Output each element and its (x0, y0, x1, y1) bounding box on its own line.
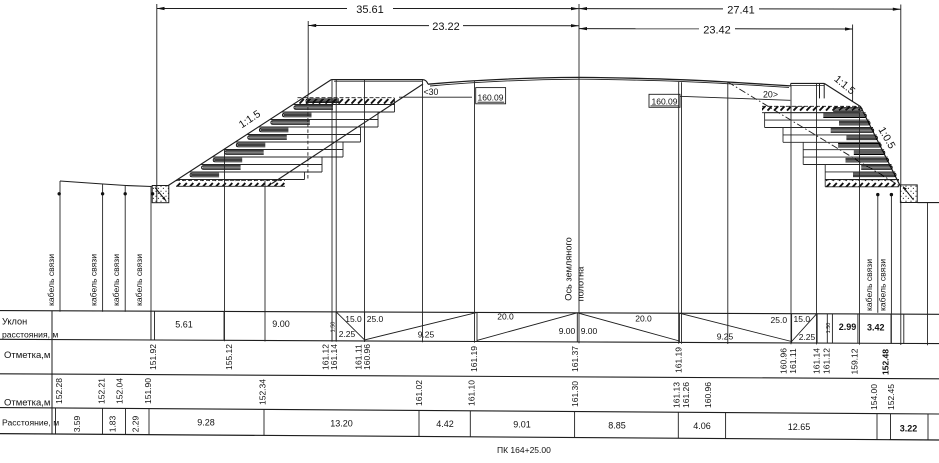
svg-text:4.42: 4.42 (436, 419, 454, 429)
svg-text:9.01: 9.01 (513, 420, 531, 430)
svg-text:160.96: 160.96 (362, 344, 372, 370)
svg-text:152.28: 152.28 (54, 378, 64, 404)
svg-text:25.0: 25.0 (367, 314, 384, 324)
svg-text:8.85: 8.85 (608, 421, 626, 431)
svg-text:161.30: 161.30 (570, 381, 580, 407)
svg-text:<30: <30 (424, 87, 439, 97)
svg-text:9.00: 9.00 (272, 319, 290, 329)
svg-text:кабель связи: кабель связи (134, 254, 144, 306)
svg-text:13.20: 13.20 (330, 419, 353, 429)
svg-text:3.22: 3.22 (900, 424, 918, 434)
svg-text:12.65: 12.65 (788, 422, 811, 432)
svg-text:27.41: 27.41 (727, 5, 755, 17)
svg-text:1.50: 1.50 (826, 323, 832, 334)
svg-text:1.83: 1.83 (108, 415, 118, 432)
svg-text:161.02: 161.02 (414, 380, 424, 406)
svg-text:152.34: 152.34 (258, 379, 268, 405)
svg-text:160.09: 160.09 (652, 96, 678, 106)
svg-text:кабель связи: кабель связи (111, 254, 121, 306)
svg-text:9.00: 9.00 (559, 326, 576, 336)
svg-text:159.12: 159.12 (850, 348, 860, 374)
svg-text:152.21: 152.21 (97, 378, 107, 404)
svg-text:161.10: 161.10 (467, 380, 477, 406)
svg-text:152.04: 152.04 (115, 378, 125, 404)
svg-text:2.25: 2.25 (339, 329, 356, 339)
svg-text:20.0: 20.0 (635, 314, 652, 324)
svg-text:1.50: 1.50 (330, 322, 336, 333)
svg-text:2.29: 2.29 (131, 415, 141, 432)
svg-text:5.61: 5.61 (175, 320, 193, 330)
svg-text:25.0: 25.0 (771, 315, 788, 325)
svg-text:161.37: 161.37 (570, 346, 580, 372)
svg-text:9.00: 9.00 (581, 326, 598, 336)
svg-text:2.25: 2.25 (799, 332, 816, 342)
svg-text:кабель связи: кабель связи (89, 254, 99, 306)
svg-text:кабель связи: кабель связи (46, 254, 56, 306)
svg-text:23.42: 23.42 (703, 25, 731, 37)
svg-text:23.22: 23.22 (432, 21, 460, 33)
svg-text:Отметка,м: Отметка,м (4, 350, 50, 361)
svg-text:4.06: 4.06 (693, 421, 711, 431)
svg-text:20.0: 20.0 (497, 312, 514, 322)
svg-text:161.14: 161.14 (329, 344, 339, 370)
svg-text:152.45: 152.45 (886, 384, 896, 410)
svg-text:15.0: 15.0 (794, 314, 811, 324)
svg-text:161.11: 161.11 (788, 348, 798, 374)
svg-text:160.96: 160.96 (703, 382, 713, 408)
svg-text:9.28: 9.28 (197, 418, 215, 428)
svg-text:1:1.5: 1:1.5 (832, 73, 858, 97)
svg-text:15.0: 15.0 (345, 314, 362, 324)
svg-text:2.99: 2.99 (839, 322, 857, 332)
svg-text:151.90: 151.90 (143, 378, 153, 404)
svg-text:161.13: 161.13 (671, 382, 681, 408)
svg-text:расстояния, м: расстояния, м (2, 330, 58, 340)
svg-text:151.92: 151.92 (148, 344, 158, 370)
svg-text:161.12: 161.12 (821, 348, 831, 374)
svg-text:Отметка,м: Отметка,м (4, 398, 50, 409)
svg-text:20>: 20> (763, 90, 778, 100)
svg-text:160.96: 160.96 (779, 348, 789, 374)
svg-text:160.09: 160.09 (478, 93, 504, 103)
svg-text:35.61: 35.61 (356, 4, 384, 16)
svg-text:полотна: полотна (576, 266, 586, 302)
svg-text:161.19: 161.19 (469, 346, 479, 372)
svg-text:9.25: 9.25 (418, 330, 435, 340)
svg-text:161.26: 161.26 (681, 382, 691, 408)
svg-text:кабель связи: кабель связи (864, 259, 874, 311)
svg-text:3.59: 3.59 (72, 415, 82, 432)
svg-text:161.19: 161.19 (673, 347, 683, 373)
svg-text:154.00: 154.00 (869, 384, 879, 410)
svg-text:155.12: 155.12 (224, 344, 234, 370)
svg-text:Ось земляного: Ось земляного (564, 237, 574, 300)
svg-text:161.14: 161.14 (812, 348, 822, 374)
svg-text:3.42: 3.42 (867, 323, 885, 333)
svg-text:Расстояние, м: Расстояние, м (2, 418, 59, 428)
svg-text:кабель связи: кабель связи (877, 259, 887, 311)
svg-text:ПК 164+25.00: ПК 164+25.00 (497, 445, 551, 455)
svg-text:152.48: 152.48 (881, 349, 891, 375)
svg-text:1:1.5: 1:1.5 (237, 108, 263, 131)
svg-text:Уклон: Уклон (2, 317, 27, 327)
svg-text:9.25: 9.25 (717, 332, 734, 342)
